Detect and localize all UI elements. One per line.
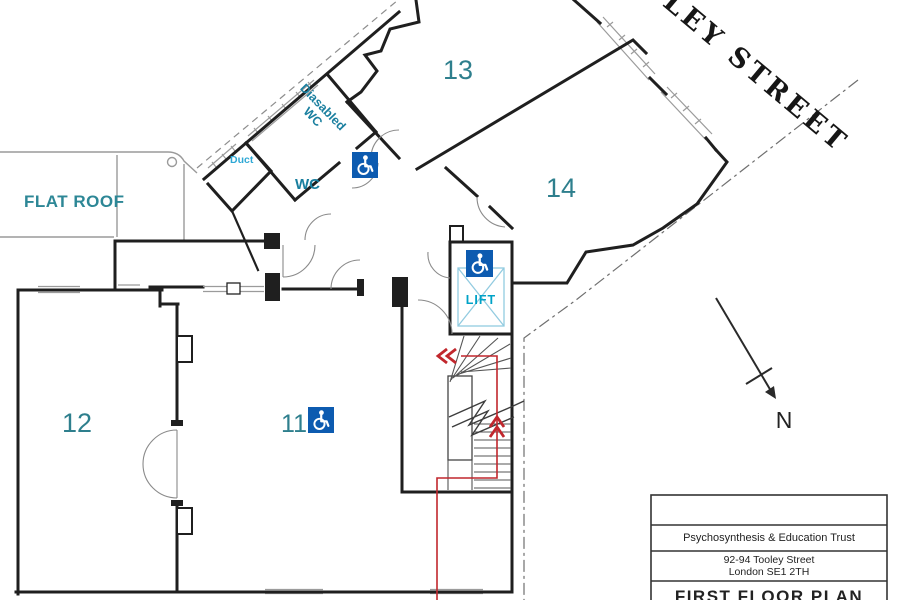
north-label: N: [776, 407, 793, 433]
glazed-partition: [203, 283, 264, 294]
title-block-address-line2: London SE1 2TH: [729, 566, 810, 578]
wheelchair-icon-room-11: [308, 407, 334, 433]
north-arrow: N: [716, 298, 792, 433]
north-arrow-head-icon: [765, 386, 776, 399]
floor-plan-drawing: LIFT TOOLEY STREET FLAT ROOF Duct Diasab…: [0, 0, 900, 600]
duct-label: Duct: [230, 154, 254, 166]
title-block-organisation: Psychosynthesis & Education Trust: [683, 532, 855, 544]
flat-roof-label: FLAT ROOF: [24, 192, 125, 211]
street-label: TOOLEY STREET: [597, 0, 855, 159]
room-14-number: 14: [546, 173, 576, 203]
title-block: Psychosynthesis & Education Trust 92-94 …: [651, 495, 887, 600]
escape-arrow-left-icon: [438, 349, 456, 363]
floor-plan-page: LIFT TOOLEY STREET FLAT ROOF Duct Diasab…: [0, 0, 900, 600]
walls: [16, 0, 727, 594]
room-11-number: 11: [281, 410, 307, 438]
room-12-number: 12: [62, 408, 92, 438]
lift-label: LIFT: [466, 293, 496, 307]
title-block-address-line1: 92-94 Tooley Street: [724, 554, 815, 566]
wheelchair-icon-disabled-wc: [352, 152, 378, 178]
wheelchair-icon-lift: [466, 250, 493, 277]
title-block-drawing-title: FIRST FLOOR PLAN: [675, 587, 863, 600]
wall-nodes: [171, 233, 408, 506]
windows: [38, 17, 712, 594]
room-13-number: 13: [443, 55, 473, 85]
wc-label: WC: [295, 176, 320, 193]
